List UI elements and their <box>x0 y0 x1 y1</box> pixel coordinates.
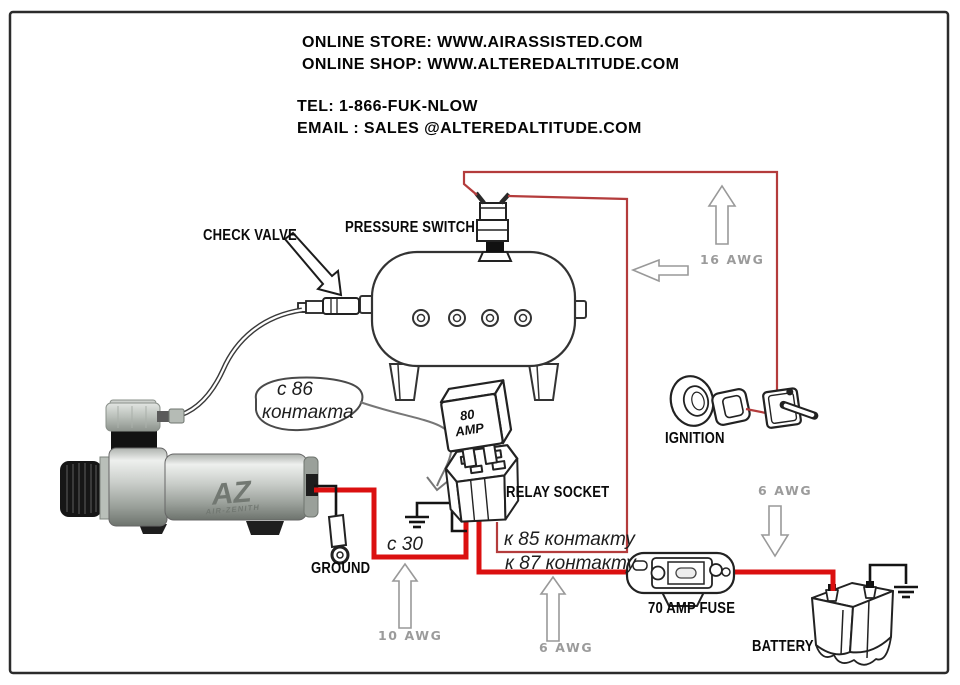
contact87-label: к 87 контакту <box>505 553 636 575</box>
left-arrow-16awg-icon <box>633 260 688 281</box>
battery-ground-wire <box>870 565 906 588</box>
header-email: EMAIL : SALES @ALTEREDALTITUDE.COM <box>297 120 642 138</box>
pressure-switch-label: PRESSURE SWITCH <box>345 219 475 237</box>
check-valve-drawing <box>298 298 359 314</box>
contact85-label: к 85 контакту <box>504 529 635 551</box>
toggle-switch-drawing <box>763 386 816 428</box>
ground-ring-terminal <box>329 515 348 563</box>
relay-ground-symbol-icon <box>405 517 429 527</box>
battery-label: BATTERY <box>752 638 814 656</box>
awg10-label: 10 AWG <box>378 628 443 643</box>
contact86-line2: контакта <box>262 402 354 424</box>
air-tank-drawing <box>360 252 586 400</box>
check-valve-label: CHECK VALVE <box>203 227 297 245</box>
up-arrow-16awg-icon <box>709 186 735 244</box>
pressure-switch-drawing <box>476 193 511 261</box>
ignition-label: IGNITION <box>665 430 725 448</box>
fuse-label: 70 AMP FUSE <box>648 600 735 618</box>
header-telephone: TEL: 1-866-FUK-NLOW <box>297 98 478 116</box>
up-arrow-6awg-icon <box>541 577 565 641</box>
ignition-drawing <box>666 372 751 431</box>
ground-label: GROUND <box>311 560 370 578</box>
contact86-arrow <box>360 402 452 490</box>
awg16-label: 16 AWG <box>700 252 765 267</box>
battery-drawing <box>812 581 893 665</box>
header-online-store: ONLINE STORE: WWW.AIRASSISTED.COM <box>302 34 643 52</box>
diagram-artwork: AZ AIR-ZENITH <box>0 0 960 685</box>
wiring-diagram: AZ AIR-ZENITH <box>0 0 960 685</box>
contact30-label: с 30 <box>387 534 423 556</box>
awg6-battery-label: 6 AWG <box>758 483 812 498</box>
header-online-shop: ONLINE SHOP: WWW.ALTEREDALTITUDE.COM <box>302 56 679 74</box>
battery-ground-symbol-icon <box>894 587 918 597</box>
down-arrow-6awg-icon <box>762 506 788 556</box>
contact86-line1: с 86 <box>277 379 313 401</box>
fuse-holder-drawing <box>627 553 734 606</box>
awg6-relay-label: 6 AWG <box>539 640 593 655</box>
relay-socket-label: RELAY SOCKET <box>506 484 609 502</box>
up-arrow-10awg-icon <box>393 564 417 628</box>
